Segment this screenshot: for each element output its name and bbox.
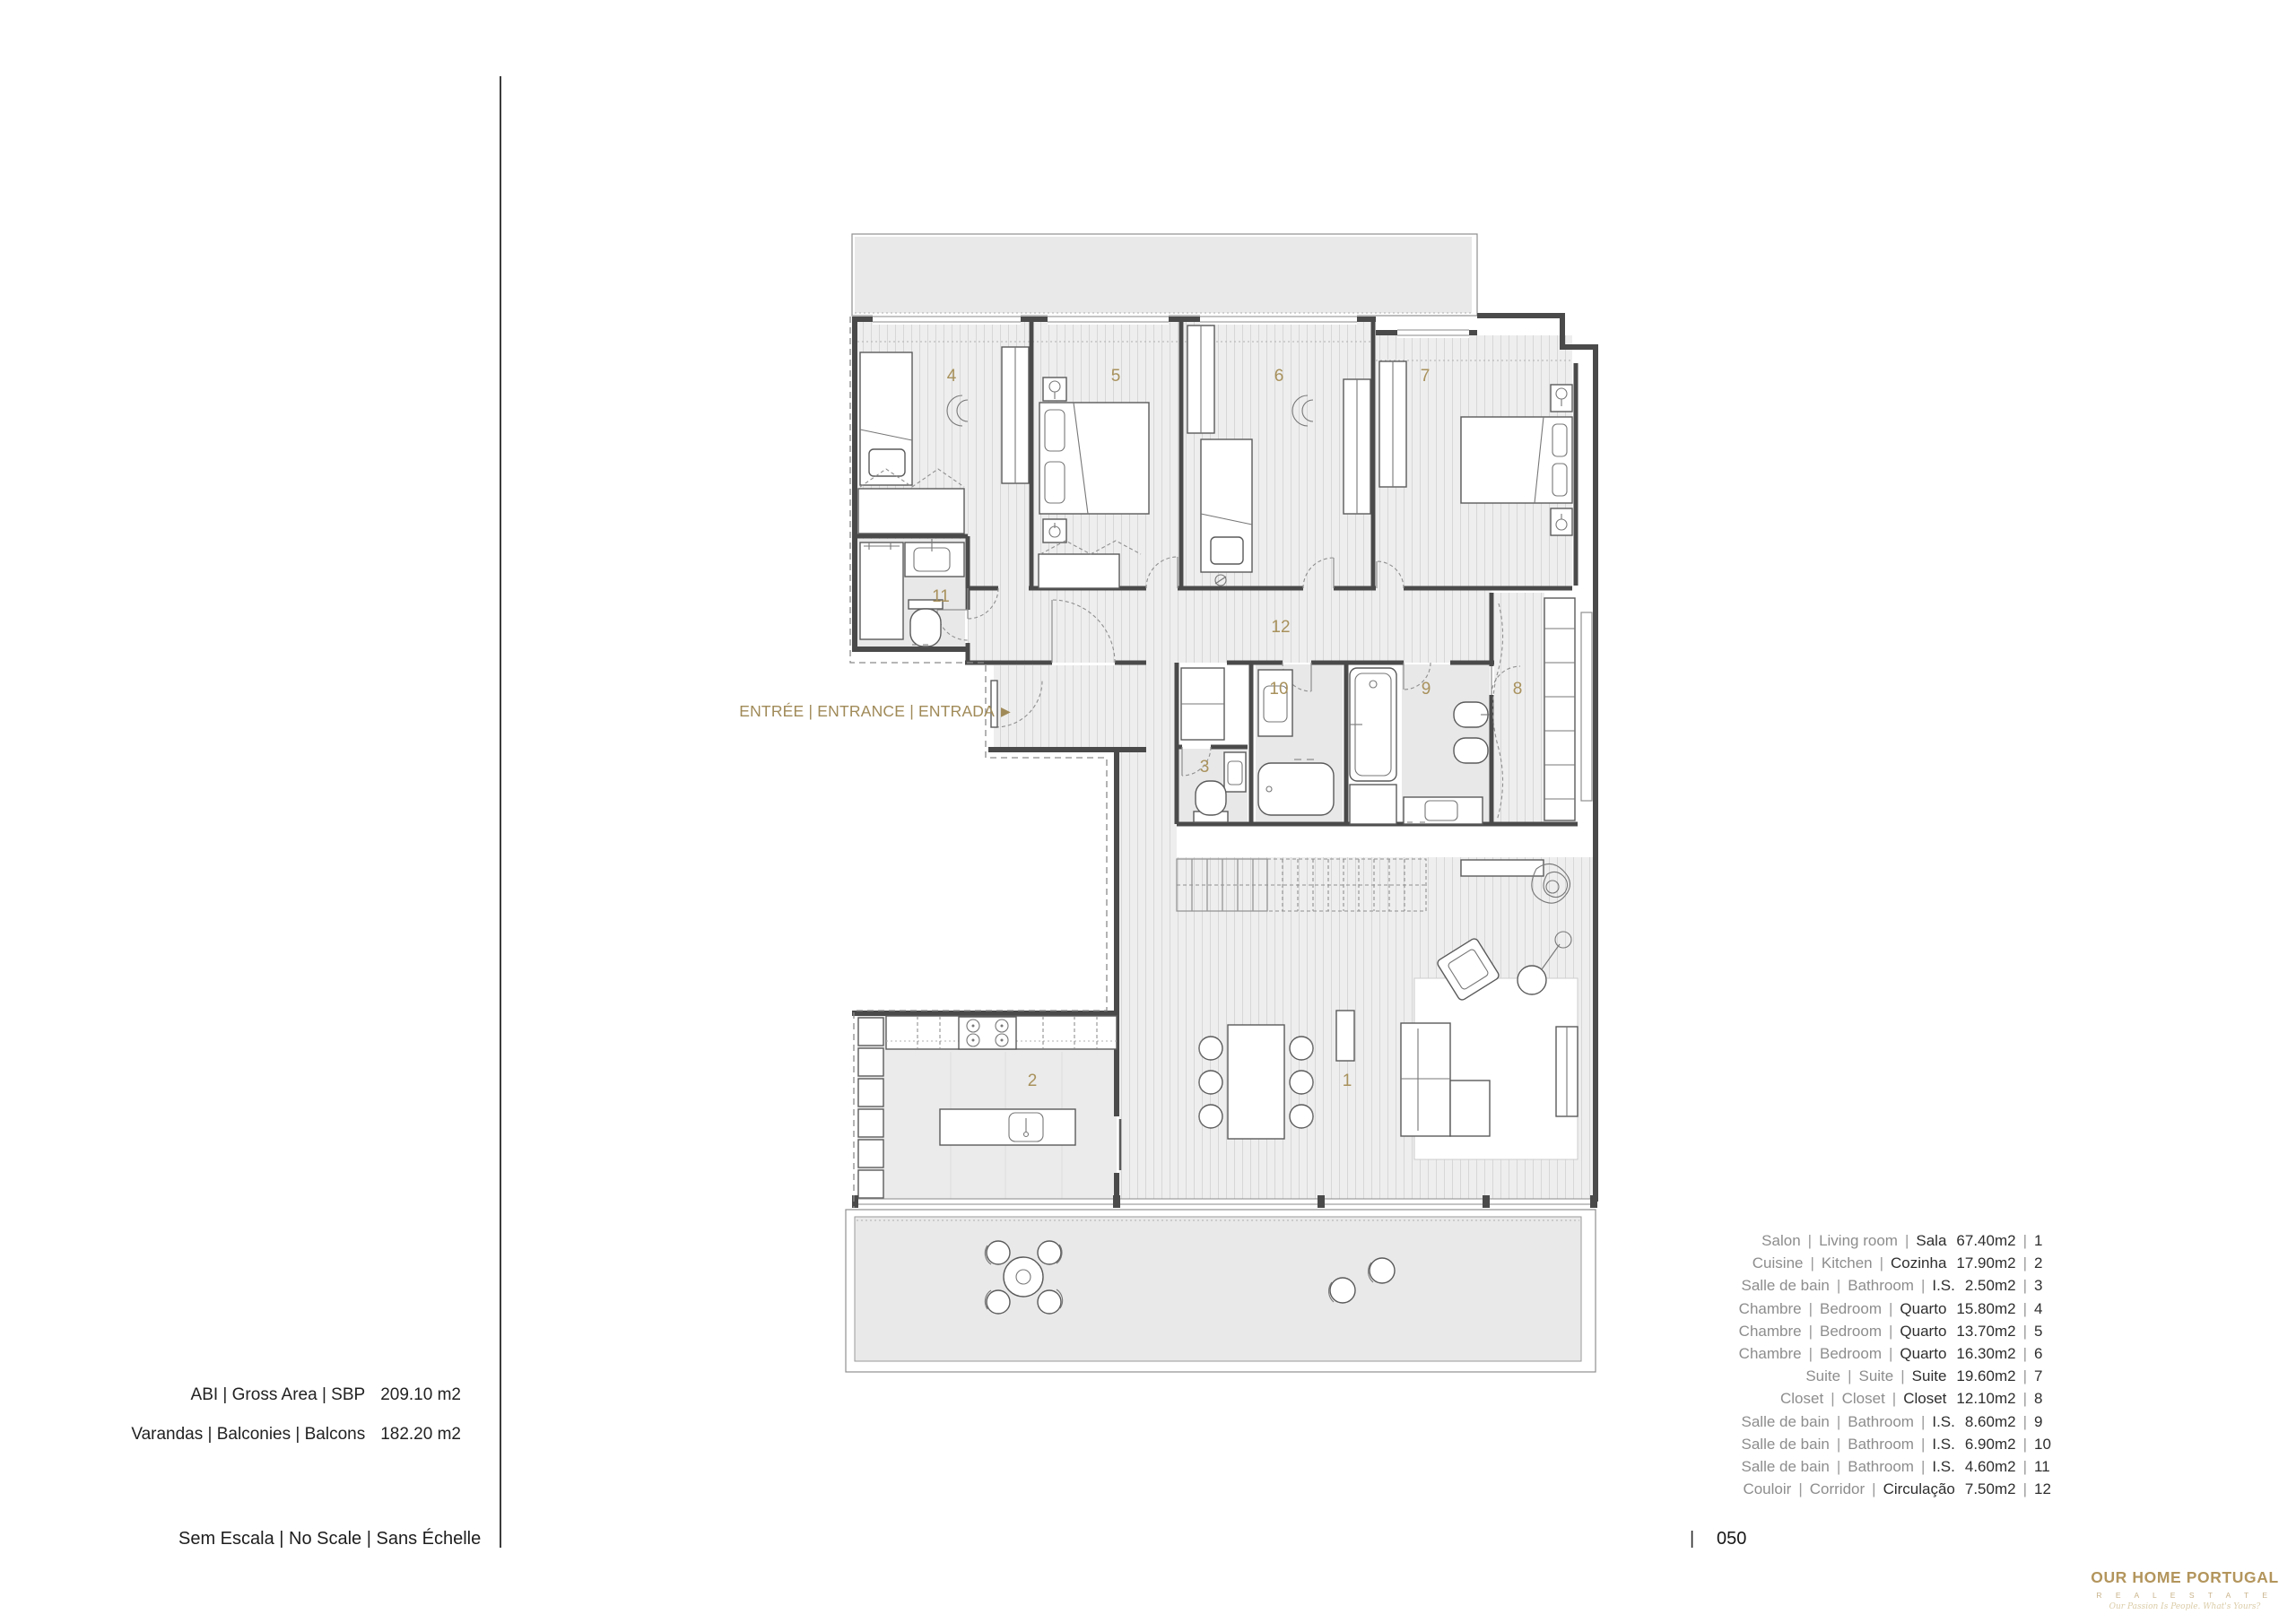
entrance-label: ENTRÉE | ENTRANCE | ENTRADA ▶: [749, 702, 1011, 721]
legend-room-area: 12.10m2: [1956, 1390, 2015, 1408]
legend-room-pt: I.S.: [1932, 1413, 1955, 1431]
closet8-floor: [1494, 593, 1544, 824]
balcony-floor: [855, 237, 1472, 313]
legend-room-number: 9: [2034, 1413, 2061, 1431]
legend-room-area: 15.80m2: [1956, 1300, 2015, 1318]
legend-pipe: |: [1905, 1232, 1909, 1250]
legend-room-en: Bathroom: [1848, 1458, 1914, 1476]
footer-title-block: | APARTAMENTO 10A | 050 |: [1690, 1529, 1991, 1549]
legend-room-pt: Circulação: [1883, 1480, 1955, 1498]
legend-pipe: |: [1798, 1480, 1802, 1498]
legend-room-area: 67.40m2: [1956, 1232, 2015, 1250]
legend-room-number: 8: [2034, 1390, 2061, 1408]
legend-row: Chambre | Bedroom | Quarto 15.80m2 | 4: [1739, 1300, 2061, 1323]
stove: [959, 1017, 1016, 1049]
legend-room-area: 2.50m2: [1965, 1277, 2016, 1295]
bed-double: [1461, 417, 1572, 503]
gross-area-label: ABI | Gross Area | SBP: [191, 1385, 366, 1404]
legend-pipe: |: [2023, 1300, 2027, 1318]
room-number-5: 5: [1111, 367, 1121, 386]
balconies-area-value: 182.20 m2: [380, 1425, 461, 1444]
legend-pipe: |: [2023, 1323, 2027, 1341]
legend-room-en: Bedroom: [1820, 1300, 1882, 1318]
side-table: [1518, 966, 1546, 994]
legend-room-fr: Chambre: [1739, 1323, 1802, 1341]
legend-pipe: |: [1892, 1390, 1896, 1408]
room-number-3: 3: [1200, 758, 1210, 777]
legend-room-en: Corridor: [1810, 1480, 1865, 1498]
legend-room-area: 7.50m2: [1965, 1480, 2016, 1498]
balconies-area-label: Varandas | Balconies | Balcons: [131, 1425, 365, 1444]
room-number-7: 7: [1421, 367, 1431, 386]
room-number-8: 8: [1513, 680, 1523, 699]
legend-pipe: |: [2023, 1390, 2027, 1408]
legend-room-number: 6: [2034, 1345, 2061, 1363]
legend-room-number: 5: [2034, 1323, 2061, 1341]
legend-room-area: 19.60m2: [1956, 1367, 2015, 1385]
room-number-11: 11: [932, 587, 950, 606]
legend-room-en: Closet: [1842, 1390, 1885, 1408]
legend-pipe: |: [2023, 1345, 2027, 1363]
logo-title: OUR HOME PORTUGAL: [2077, 1568, 2292, 1587]
balconies-area-row: Varandas | Balconies | Balcons182.20 m2: [131, 1424, 461, 1445]
sofa-chaise: [1450, 1081, 1490, 1136]
legend-pipe: |: [1809, 1300, 1813, 1318]
legend-room-pt: I.S.: [1932, 1436, 1955, 1454]
low-wardrobe: [858, 489, 964, 534]
legend-room-fr: Salle de bain: [1742, 1436, 1830, 1454]
legend-pipe: |: [2023, 1436, 2027, 1454]
legend-room-number: 10: [2034, 1436, 2061, 1454]
legend-pipe: |: [1921, 1458, 1925, 1476]
legend-pipe: |: [1808, 1232, 1812, 1250]
legend-room-number: 11: [2034, 1458, 2061, 1476]
room-number-2: 2: [1028, 1072, 1038, 1090]
legend-room-en: Bedroom: [1820, 1323, 1882, 1341]
legend-row: Salle de bain | Bathroom | I.S. 8.60m2 |…: [1739, 1413, 2061, 1436]
legend-room-pt: Suite: [1912, 1367, 1947, 1385]
shower-tub: [1258, 763, 1334, 815]
legend-room-pt: Sala: [1916, 1232, 1946, 1250]
legend-pipe: |: [1880, 1254, 1883, 1272]
gross-area-row: ABI | Gross Area | SBP209.10 m2: [131, 1384, 461, 1406]
legend-row: Chambre | Bedroom | Quarto 13.70m2 | 5: [1739, 1323, 2061, 1345]
logo-subtitle: R E A L E S T A T E: [2077, 1591, 2292, 1600]
legend-room-fr: Chambre: [1739, 1300, 1802, 1318]
footer-separator: |: [1690, 1529, 1694, 1549]
legend-room-fr: Closet: [1780, 1390, 1823, 1408]
logo-tagline: Our Passion Is People. What's Yours?: [2077, 1602, 2292, 1611]
entrance-text: ENTRÉE | ENTRANCE | ENTRADA: [739, 702, 995, 721]
legend-room-number: 1: [2034, 1232, 2061, 1250]
floor-plan: 4 5 6 7 11 12 10 9 8 3 2 1: [819, 227, 1608, 1375]
legend-room-en: Kitchen: [1822, 1254, 1873, 1272]
legend-row: Suite | Suite | Suite 19.60m2 | 7: [1739, 1367, 2061, 1390]
low-wardrobe: [1039, 554, 1119, 588]
legend-room-area: 16.30m2: [1956, 1345, 2015, 1363]
legend-row: Chambre | Bedroom | Quarto 16.30m2 | 6: [1739, 1345, 2061, 1367]
drawing-sheet: 4 5 6 7 11 12 10 9 8 3 2 1 ENTRÉE | ENTR…: [0, 0, 2296, 1623]
console-shelf: [1461, 860, 1544, 876]
nightstand: [1551, 508, 1572, 535]
dining-table: [1228, 1025, 1284, 1139]
legend-pipe: |: [1837, 1458, 1840, 1476]
legend-room-pt: Cozinha: [1891, 1254, 1946, 1272]
legend-room-en: Bedroom: [1820, 1345, 1882, 1363]
room-legend: Salon | Living room | Sala 67.40m2 | 1 C…: [1739, 1232, 2061, 1503]
legend-room-en: Bathroom: [1848, 1277, 1914, 1295]
terrace-table: [1004, 1257, 1043, 1297]
legend-room-pt: Closet: [1903, 1390, 1946, 1408]
legend-pipe: |: [1921, 1413, 1925, 1431]
legend-pipe: |: [2023, 1277, 2027, 1295]
legend-pipe: |: [2023, 1232, 2027, 1250]
gross-area-value: 209.10 m2: [380, 1385, 461, 1404]
terrace-chair: [1330, 1278, 1355, 1303]
legend-pipe: |: [1831, 1390, 1834, 1408]
island: [940, 1109, 1075, 1145]
legend-pipe: |: [1921, 1277, 1925, 1295]
linen-closet: [1350, 785, 1396, 824]
legend-room-number: 4: [2034, 1300, 2061, 1318]
terrace-floor: [855, 1217, 1581, 1361]
legend-room-fr: Salon: [1761, 1232, 1800, 1250]
legend-room-pt: Quarto: [1900, 1300, 1946, 1318]
cabinet-column: [1336, 1011, 1354, 1061]
legend-pipe: |: [1889, 1323, 1892, 1341]
nightstand: [1043, 519, 1066, 542]
legend-pipe: |: [1809, 1323, 1813, 1341]
legend-room-en: Suite: [1858, 1367, 1893, 1385]
wardrobe-run: [1544, 598, 1575, 820]
legend-room-area: 4.60m2: [1965, 1458, 2016, 1476]
duct-shaft: [1581, 612, 1592, 801]
legend-pipe: |: [1872, 1480, 1875, 1498]
room-number-6: 6: [1274, 367, 1284, 386]
legend-room-fr: Chambre: [1739, 1345, 1802, 1363]
area-summary: ABI | Gross Area | SBP209.10 m2 Varandas…: [131, 1384, 461, 1463]
legend-room-fr: Cuisine: [1752, 1254, 1804, 1272]
legend-pipe: |: [1837, 1436, 1840, 1454]
legend-pipe: |: [1921, 1436, 1925, 1454]
legend-row: Salle de bain | Bathroom | I.S. 4.60m2 |…: [1739, 1458, 2061, 1480]
legend-room-pt: I.S.: [1932, 1277, 1955, 1295]
legend-room-area: 8.60m2: [1965, 1413, 2016, 1431]
legend-row: Salle de bain | Bathroom | I.S. 6.90m2 |…: [1739, 1436, 2061, 1458]
legend-row: Salle de bain | Bathroom | I.S. 2.50m2 |…: [1739, 1277, 2061, 1299]
legend-room-area: 13.70m2: [1956, 1323, 2015, 1341]
legend-room-fr: Salle de bain: [1742, 1413, 1830, 1431]
legend-room-en: Living room: [1819, 1232, 1898, 1250]
entrance-arrow-icon: ▶: [1001, 704, 1011, 719]
legend-room-fr: Suite: [1805, 1367, 1840, 1385]
legend-pipe: |: [2023, 1480, 2027, 1498]
toilet: [910, 609, 941, 647]
scale-note: Sem Escala | No Scale | Sans Échelle: [178, 1529, 481, 1549]
room-number-4: 4: [947, 367, 957, 386]
legend-pipe: |: [1837, 1277, 1840, 1295]
legend-room-en: Bathroom: [1848, 1436, 1914, 1454]
legend-row: Closet | Closet | Closet 12.10m2 | 8: [1739, 1390, 2061, 1412]
room-number-1: 1: [1343, 1072, 1352, 1090]
room-number-9: 9: [1422, 680, 1431, 699]
stair-landing: [1178, 827, 1593, 857]
bed-double: [1039, 403, 1149, 514]
legend-pipe: |: [2023, 1254, 2027, 1272]
company-logo: OUR HOME PORTUGAL R E A L E S T A T E Ou…: [2077, 1568, 2292, 1611]
legend-row: Cuisine | Kitchen | Cozinha 17.90m2 | 2: [1739, 1254, 2061, 1277]
legend-pipe: |: [1809, 1345, 1813, 1363]
legend-pipe: |: [2023, 1367, 2027, 1385]
legend-room-pt: I.S.: [1932, 1458, 1955, 1476]
legend-row: Couloir | Corridor | Circulação 7.50m2 |…: [1739, 1480, 2061, 1503]
legend-room-area: 6.90m2: [1965, 1436, 2016, 1454]
legend-room-number: 3: [2034, 1277, 2061, 1295]
hall-floor: [1119, 663, 1177, 862]
legend-pipe: |: [2023, 1413, 2027, 1431]
legend-pipe: |: [1900, 1367, 1904, 1385]
legend-room-fr: Couloir: [1743, 1480, 1791, 1498]
legend-pipe: |: [1889, 1300, 1892, 1318]
legend-pipe: |: [2023, 1458, 2027, 1476]
laundry-closet: [860, 542, 903, 639]
legend-room-number: 2: [2034, 1254, 2061, 1272]
sofa: [1401, 1023, 1450, 1136]
toilet: [1454, 738, 1488, 763]
room-number-10: 10: [1269, 680, 1288, 699]
legend-room-fr: Salle de bain: [1742, 1458, 1830, 1476]
legend-room-area: 17.90m2: [1956, 1254, 2015, 1272]
corridor-floor: [968, 588, 1492, 663]
legend-pipe: |: [1810, 1254, 1813, 1272]
legend-room-en: Bathroom: [1848, 1413, 1914, 1431]
floor-plan-svg: 4 5 6 7 11 12 10 9 8 3 2 1: [819, 227, 1608, 1375]
legend-room-number: 7: [2034, 1367, 2061, 1385]
legend-room-number: 12: [2034, 1480, 2061, 1498]
legend-room-fr: Salle de bain: [1742, 1277, 1830, 1295]
room-number-12: 12: [1271, 618, 1290, 637]
terrace-chair: [1370, 1258, 1395, 1283]
title-block-divider-line: [500, 76, 501, 1548]
legend-room-pt: Quarto: [1900, 1323, 1946, 1341]
legend-pipe: |: [1848, 1367, 1851, 1385]
toilet: [1196, 781, 1226, 815]
legend-row: Salon | Living room | Sala 67.40m2 | 1: [1739, 1232, 2061, 1254]
sheet-number: 050: [1717, 1529, 1991, 1549]
legend-room-pt: Quarto: [1900, 1345, 1946, 1363]
legend-pipe: |: [1837, 1413, 1840, 1431]
legend-pipe: |: [1889, 1345, 1892, 1363]
